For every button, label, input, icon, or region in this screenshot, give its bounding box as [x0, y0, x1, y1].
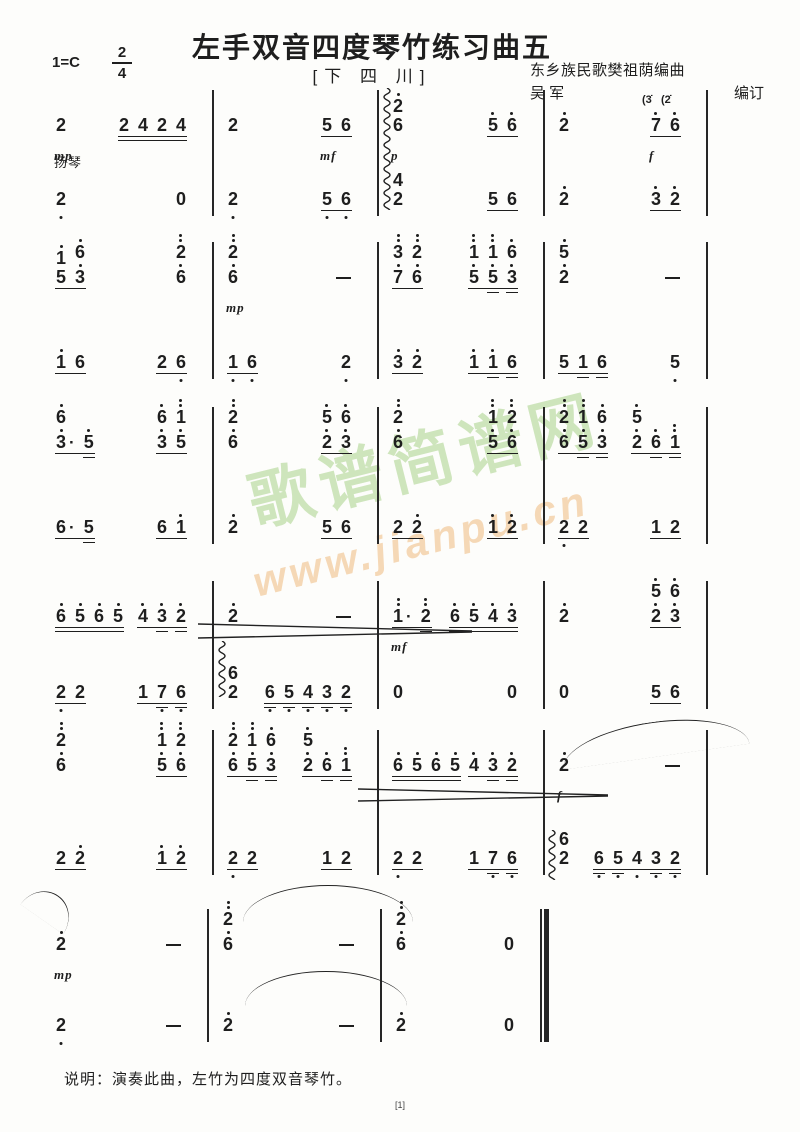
note-stack: 2 — [56, 1016, 66, 1035]
note-stack: 3 — [507, 601, 517, 626]
note: 63 — [341, 402, 351, 452]
measure: 32116 — [377, 345, 543, 379]
note — [665, 277, 680, 287]
note: 1 — [469, 849, 479, 868]
note: 6 — [507, 353, 517, 372]
note-digit: 6 — [94, 607, 104, 626]
note-stack: 6 — [507, 110, 517, 135]
note: 2 — [578, 518, 588, 537]
octave-dots-above — [491, 399, 494, 407]
octave-dots-above — [510, 399, 513, 407]
note: 15 — [157, 721, 167, 776]
note-digit: 6 — [56, 607, 66, 626]
note-stack: 7 — [488, 849, 498, 868]
measure: 25263 — [543, 579, 706, 633]
note-stack: 5 — [412, 750, 422, 775]
note: 1 — [488, 347, 498, 372]
note-digit: 2 — [341, 849, 351, 868]
note-digit: 6 — [56, 518, 66, 537]
note: 1 — [341, 746, 351, 776]
note-stack: 5 — [450, 750, 460, 775]
note-stack: 6 — [341, 518, 351, 537]
note-digit: 1 — [469, 353, 479, 372]
note: 3 — [157, 601, 167, 626]
note-stack: 63 — [157, 402, 167, 452]
note-stack: 2 — [228, 512, 238, 537]
note-digit: 5 — [84, 518, 94, 537]
note-stack: 2 — [507, 750, 517, 775]
beat-group: 2 — [559, 601, 569, 633]
dash-extension — [665, 277, 680, 279]
note-digit: 4 — [632, 849, 642, 868]
note: 2 — [393, 849, 403, 868]
note-stack: 1 — [157, 843, 167, 868]
system-4: 656543221·mf265432526322176626543200056 — [40, 575, 712, 719]
beat-group: 56 — [322, 518, 351, 544]
measure: 256 — [212, 182, 377, 216]
octave-dots-below — [306, 709, 309, 712]
note-digit: 2 — [228, 408, 238, 427]
note: 6 — [265, 683, 275, 702]
measure: 2212 — [212, 841, 377, 875]
beat-group: 6315 — [157, 398, 186, 460]
measure: 6265432 — [543, 841, 706, 875]
note: 2 — [228, 849, 238, 868]
note-stack: 26 — [393, 91, 403, 135]
note-stack: 1 — [138, 683, 148, 702]
note-stack: 26 — [507, 398, 517, 453]
note-stack: 6 — [597, 353, 607, 372]
note: 26 — [559, 398, 569, 453]
note: 6 — [341, 190, 351, 209]
note-digit: 3 — [393, 243, 403, 262]
note: 52 — [303, 725, 313, 775]
beat-group — [166, 944, 181, 961]
note-stack: 5 — [670, 353, 680, 372]
note-stack: 6 — [56, 601, 66, 626]
note-stack: 2 — [670, 849, 680, 868]
octave-dots-above — [344, 747, 347, 755]
note: 2 — [507, 750, 517, 775]
octave-dots-above — [491, 234, 494, 242]
beat-group: 26 — [223, 900, 233, 962]
beat-group: 26 — [157, 353, 186, 379]
note: 4 — [488, 601, 498, 626]
note-digit: 2 — [507, 756, 517, 775]
note-stack: 26 — [228, 721, 238, 776]
measure: 26mp — [212, 240, 377, 294]
note: 2mp — [56, 116, 66, 135]
note-stack: 26 — [228, 398, 238, 453]
note-digit: 4 — [303, 683, 313, 702]
rest-digit: 0 — [176, 190, 186, 209]
note-stack: 5 — [113, 601, 123, 626]
octave-dots-above — [60, 722, 63, 730]
note-digit: 5 — [176, 433, 186, 452]
note: 15 — [578, 398, 588, 453]
measure: 26p56 — [377, 88, 543, 142]
note-digit: 6 — [431, 756, 441, 775]
note-digit: 2 — [559, 849, 569, 868]
beat-group: 0 — [393, 683, 403, 709]
note: 2 — [559, 601, 569, 626]
note-stack: 15 — [488, 398, 498, 453]
note: 3 — [322, 683, 332, 702]
note: 6 — [507, 190, 517, 209]
measure: 6565432 — [377, 728, 543, 782]
octave-dots-below — [654, 875, 657, 878]
note-digit: 2 — [228, 518, 238, 537]
note-stack: 6 — [594, 849, 604, 868]
dynamic-mf: mf — [391, 639, 407, 655]
measure: 00 — [377, 675, 543, 709]
note-stack: 5 — [559, 353, 569, 372]
note: 2 — [396, 1010, 406, 1035]
measure: 156326 — [40, 240, 212, 294]
beat-group: 26 — [393, 398, 403, 460]
beat-group: 22 — [228, 849, 257, 875]
note-digit: 1 — [488, 518, 498, 537]
note-stack: 15 — [488, 233, 498, 288]
note: 2 — [56, 683, 66, 702]
note-digit: 2 — [176, 243, 186, 262]
note: 1 — [138, 683, 148, 702]
note-stack: 2 — [157, 353, 167, 372]
note-digit: 5 — [578, 433, 588, 452]
note: 26mp — [228, 233, 238, 288]
note: 5 — [450, 750, 460, 775]
note-digit: 1 — [138, 683, 148, 702]
beat-group: 516 — [559, 353, 607, 379]
note-stack: 2 — [412, 347, 422, 372]
note: 2 — [393, 518, 403, 537]
note-stack: 5 — [613, 849, 623, 868]
note-stack: 2 — [228, 849, 238, 868]
note: 0 — [393, 683, 403, 702]
note-digit: 2 — [412, 353, 422, 372]
beat-group: 432 — [469, 750, 517, 782]
note: 3 — [651, 184, 661, 209]
note: 1 — [322, 849, 332, 868]
note: 0 — [504, 1016, 514, 1035]
note-digit: 2 — [393, 408, 403, 427]
note-stack: 5 — [322, 116, 332, 135]
note-digit: 2 — [412, 849, 422, 868]
note-digit: 2 — [228, 116, 238, 135]
note-stack: 2 — [559, 110, 569, 135]
note: 2 — [341, 353, 351, 372]
note-digit: 2 — [157, 353, 167, 372]
note-digit: 6 — [75, 243, 85, 262]
note: 63 — [670, 576, 680, 626]
beat-group: 2mp — [56, 929, 66, 961]
beat-group: 176 — [469, 849, 517, 875]
note-stack — [339, 944, 354, 954]
note-digit: 2 — [559, 116, 569, 135]
octave-dots-above — [424, 598, 427, 606]
beat-group: 16 — [56, 347, 85, 379]
octave-dots-below — [287, 709, 290, 712]
beat-group: 22 — [559, 518, 588, 544]
octave-dots-above — [179, 234, 182, 242]
note-stack: 2 — [247, 849, 257, 868]
beat-group: 22 — [393, 849, 422, 875]
note-digit: 2 — [632, 433, 642, 452]
note-digit: 7 — [651, 116, 661, 135]
note-stack: 6 — [507, 190, 517, 209]
beat-group: 2 — [559, 184, 569, 216]
note-digit: 2 — [75, 849, 85, 868]
note-stack: 52 — [651, 576, 661, 626]
note-stack: 6 — [670, 683, 680, 702]
note-digit: 4 — [176, 116, 186, 135]
beat-group: 22 — [56, 843, 85, 875]
note-stack — [339, 1025, 354, 1035]
note-digit: 4 — [469, 756, 479, 775]
note: 6 — [431, 750, 441, 775]
octave-dots-below — [344, 379, 347, 382]
note: 63 — [75, 237, 85, 287]
note: 5 — [322, 190, 332, 209]
note: 5 — [488, 190, 498, 209]
page-number: [1] — [0, 1100, 800, 1110]
note: 26 — [223, 900, 233, 955]
note: 5 — [84, 518, 94, 537]
note-digit: 5 — [322, 116, 332, 135]
octave-dots-above — [179, 399, 182, 407]
note: 26 — [176, 721, 186, 776]
note-digit: 1 — [488, 353, 498, 372]
note: 26 — [228, 721, 238, 776]
note-digit: 2 — [507, 518, 517, 537]
note: 52 — [632, 402, 642, 452]
beat-group: 5261 — [632, 402, 680, 459]
note: 15 — [469, 233, 479, 288]
beat-group — [166, 1025, 181, 1042]
measure: 25mf6 — [212, 88, 377, 142]
tie-curve — [243, 885, 413, 922]
beat-group: 0 — [176, 190, 186, 216]
note-digit: 6 — [507, 116, 517, 135]
octave-dots-above — [397, 598, 400, 606]
note — [339, 1025, 354, 1035]
measure: 20 — [380, 1008, 540, 1042]
beat-group: 22 — [393, 512, 422, 544]
octave-dots-above — [397, 399, 400, 407]
measure: 232 — [543, 182, 706, 216]
octave-dots-above — [232, 399, 235, 407]
note: 2 — [670, 184, 680, 209]
note-stack: 2 — [56, 116, 66, 135]
dynamic-f: f — [649, 148, 654, 164]
note-stack: 6 — [651, 427, 661, 452]
beat-group: 26p — [393, 91, 403, 142]
note-digit: 3 — [56, 433, 66, 452]
note-digit: 1 — [488, 243, 498, 262]
note-stack: 63 — [597, 402, 607, 452]
note: 7 — [488, 849, 498, 868]
beat-group: 56 — [651, 683, 680, 709]
note-digit: 2 — [651, 607, 661, 626]
credit-arranger: 东乡族民歌樊祖荫编曲 — [530, 59, 764, 80]
note-digit: 2 — [559, 268, 569, 287]
note: 2 — [341, 683, 351, 702]
note: 2 — [75, 683, 85, 702]
hairpin-wedge — [358, 788, 608, 804]
note-digit: 5 — [632, 408, 642, 427]
note-digit: 5 — [247, 756, 257, 775]
note-stack: 2 — [412, 512, 422, 537]
octave-dots-below — [60, 1042, 63, 1045]
hairpin-wedge — [198, 623, 472, 641]
note: 2 — [247, 849, 257, 868]
note-digit: 2 — [223, 1016, 233, 1035]
note-digit: 2 — [412, 518, 422, 537]
note-stack: 26 — [393, 398, 403, 453]
beat-group: 26mp — [228, 233, 238, 295]
note-stack: 5 — [322, 518, 332, 537]
note-digit: 2 — [56, 116, 66, 135]
note-digit: 1 — [469, 849, 479, 868]
measure: 256 — [212, 510, 377, 544]
note-stack: 2 — [421, 597, 431, 627]
note-stack: 6 — [341, 116, 351, 135]
dash-extension — [339, 944, 354, 946]
note-digit: 5 — [559, 353, 569, 372]
note: 6 — [75, 353, 85, 372]
note-stack — [166, 944, 181, 954]
rest-digit: 0 — [504, 935, 514, 954]
note-stack: 2 — [75, 683, 85, 702]
credit-editor-name: 吴 军 — [530, 82, 564, 103]
note: 63· — [56, 402, 75, 452]
note-stack: 0 — [507, 683, 517, 702]
measure: 265263 — [212, 405, 377, 459]
note: 2 — [176, 843, 186, 868]
note-digit: 6 — [396, 935, 406, 954]
note: 5 — [412, 750, 422, 775]
note-digit: 5 — [412, 756, 422, 775]
note-stack: 5 — [322, 190, 332, 209]
note: 2 — [228, 190, 238, 209]
augmentation-dot: · — [69, 434, 75, 451]
note: 6 — [56, 601, 66, 626]
note-digit: 2 — [670, 190, 680, 209]
beat-group: 5mf6 — [322, 116, 351, 142]
octave-dots-above — [416, 234, 419, 242]
note: 2 — [228, 116, 238, 135]
note: 6 — [507, 849, 517, 868]
note-digit: 6 — [157, 518, 167, 537]
rest-digit: 0 — [504, 1016, 514, 1035]
note-digit: 5 — [488, 190, 498, 209]
note-digit: 6 — [228, 433, 238, 452]
note: 15 — [488, 398, 498, 453]
note-stack: 2 — [228, 116, 238, 135]
note-digit: 4 — [138, 607, 148, 626]
beat-group: 12 — [322, 849, 351, 875]
note-stack: 3 — [488, 750, 498, 775]
note-stack — [665, 765, 680, 775]
note-digit: 4 — [488, 607, 498, 626]
beat-group: 2 — [228, 190, 238, 216]
measure: 22176 — [40, 675, 212, 709]
note: 2 — [223, 1010, 233, 1035]
note: 1·mf — [393, 597, 412, 627]
note: 2 — [559, 110, 569, 135]
note-stack: 6 — [670, 110, 680, 135]
note-stack: 15 — [176, 398, 186, 453]
note-digit: 2 — [559, 607, 569, 626]
note-stack: 5 — [488, 190, 498, 209]
note — [166, 944, 181, 954]
note-digit: 3 — [670, 607, 680, 626]
voice-row-upper: 15632626mp372615156352 — [40, 240, 712, 294]
note-digit: 1 — [157, 731, 167, 750]
note: 1 — [488, 512, 498, 537]
note-digit: 2 — [393, 190, 403, 209]
beat-group: 0 — [504, 935, 514, 961]
note-stack: 3 — [157, 601, 167, 626]
note: 1 — [469, 347, 479, 372]
note: 2 — [507, 512, 517, 537]
note-stack: 1 — [469, 849, 479, 868]
note-stack: 52 — [632, 402, 642, 452]
note-digit: 2 — [228, 190, 238, 209]
note-digit: 6 — [228, 756, 238, 775]
note-digit: 3 — [651, 190, 661, 209]
note-digit: 2 — [322, 433, 332, 452]
note: 2 — [559, 184, 569, 209]
note: 26 — [176, 233, 186, 288]
beat-group: 52 — [559, 237, 569, 294]
note-digit: 2 — [578, 518, 588, 537]
note: 6 — [507, 110, 517, 135]
beat-group: 0 — [507, 683, 517, 709]
note-digit: 6 — [670, 582, 680, 601]
beat-group: 56 — [322, 190, 351, 216]
rest-digit: 0 — [393, 683, 403, 702]
beat-group: 0 — [559, 683, 569, 709]
note-digit: 5 — [75, 607, 85, 626]
note-digit: 6 — [247, 353, 257, 372]
note-digit: 2 — [396, 1016, 406, 1035]
octave-dots-below — [60, 216, 63, 219]
note: 52 — [651, 576, 661, 626]
system-5: 261526261563526165654322f221222122217662… — [40, 728, 712, 885]
note-digit: 5 — [559, 243, 569, 262]
note: 26 — [412, 233, 422, 288]
note: 2 — [412, 849, 422, 868]
note-stack: 2 — [341, 683, 351, 702]
note-digit: 3 — [75, 268, 85, 287]
note-digit: 6 — [157, 408, 167, 427]
note-stack: 2 — [559, 184, 569, 209]
octave-dots-below — [344, 709, 347, 712]
note-stack: 15 — [469, 233, 479, 288]
note-digit: 5 — [651, 582, 661, 601]
octave-dots-below — [491, 875, 494, 878]
note: 5 — [113, 601, 123, 626]
note: 3 — [507, 601, 517, 626]
beat-group: 12 — [651, 518, 680, 544]
note-digit: 2 — [157, 116, 167, 135]
beat-group: 151563 — [469, 233, 517, 295]
note-digit: 1 — [56, 353, 66, 372]
note-digit: 2 — [341, 683, 351, 702]
measure: 22176 — [377, 841, 543, 875]
note: 2 — [421, 597, 431, 627]
